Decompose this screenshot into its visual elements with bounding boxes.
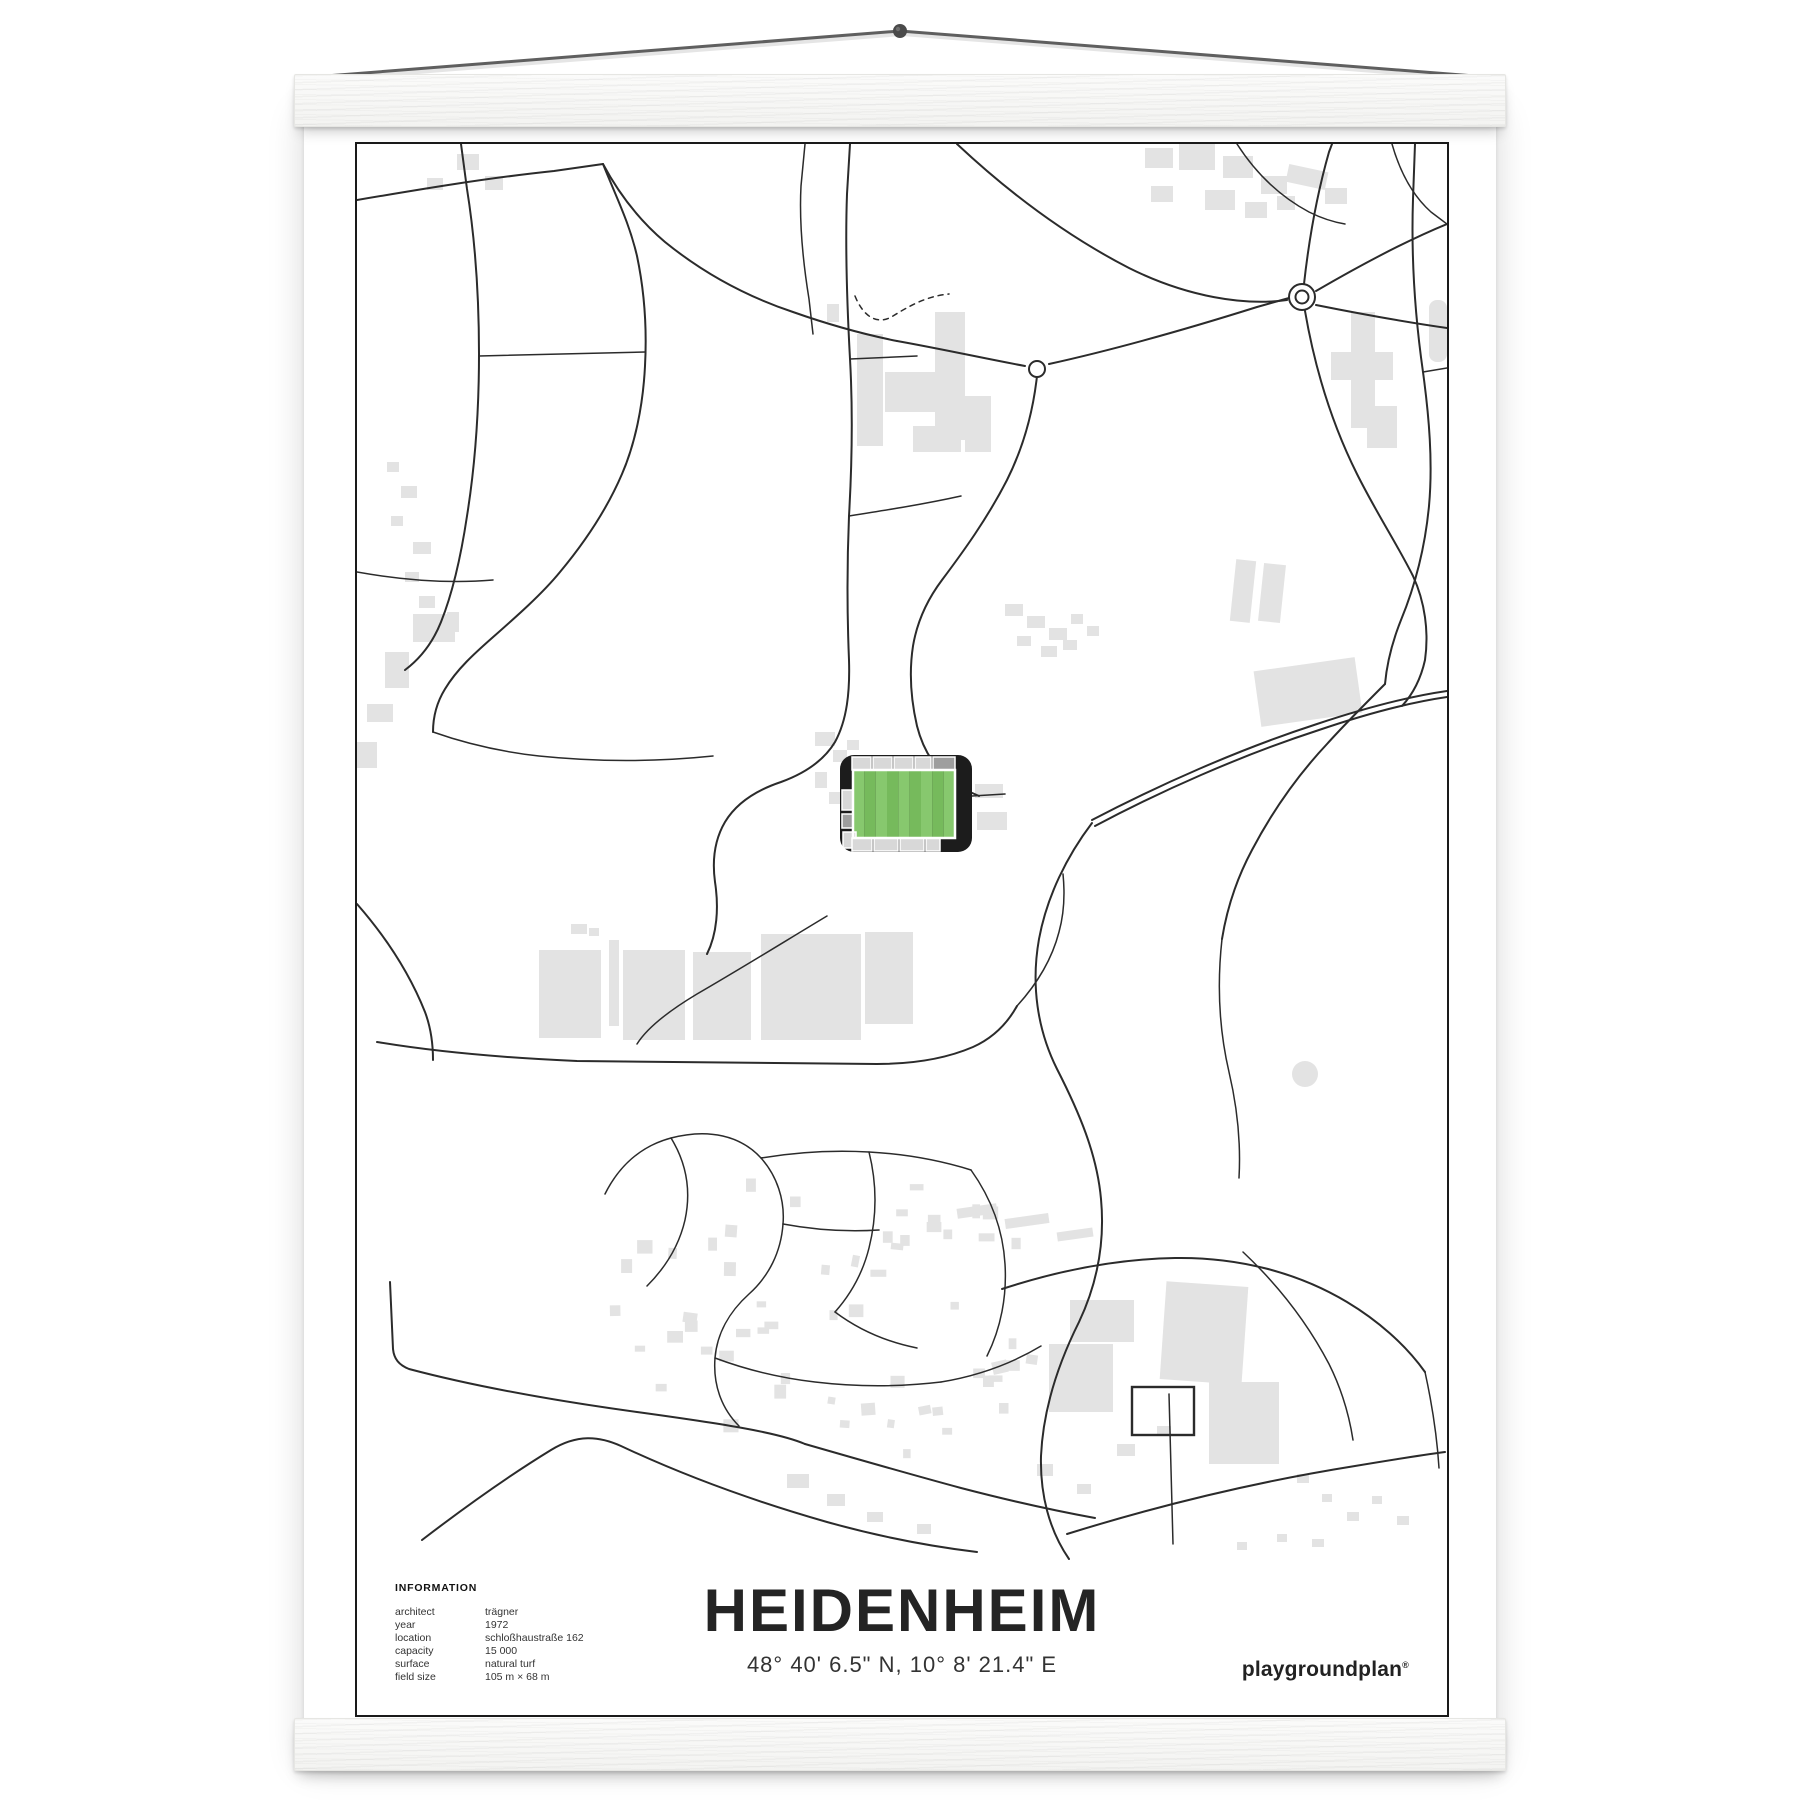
poster-mockup: INFORMATION architectträgneryear1972loca…: [0, 0, 1800, 1800]
stadium: [840, 755, 972, 852]
poster-page: INFORMATION architectträgneryear1972loca…: [304, 98, 1496, 1752]
poster-title: HEIDENHEIM: [357, 1576, 1447, 1645]
city-map: [357, 144, 1447, 1715]
bottom-hanger-rail: [294, 1718, 1506, 1771]
brand-trademark: ®: [1402, 1660, 1409, 1670]
roundabout-small-icon: [1029, 361, 1045, 377]
brand-name: playgroundplan: [1242, 1658, 1402, 1681]
top-hanger-rail: [294, 74, 1506, 127]
pond: [1292, 1061, 1318, 1087]
roundabout-large-icon: [1289, 284, 1315, 310]
dashed-path: [855, 294, 949, 320]
nail-icon: [893, 24, 907, 38]
map-frame: INFORMATION architectträgneryear1972loca…: [355, 142, 1449, 1717]
brand-logo: playgroundplan®: [1242, 1658, 1409, 1682]
football-pitch: [853, 770, 955, 838]
